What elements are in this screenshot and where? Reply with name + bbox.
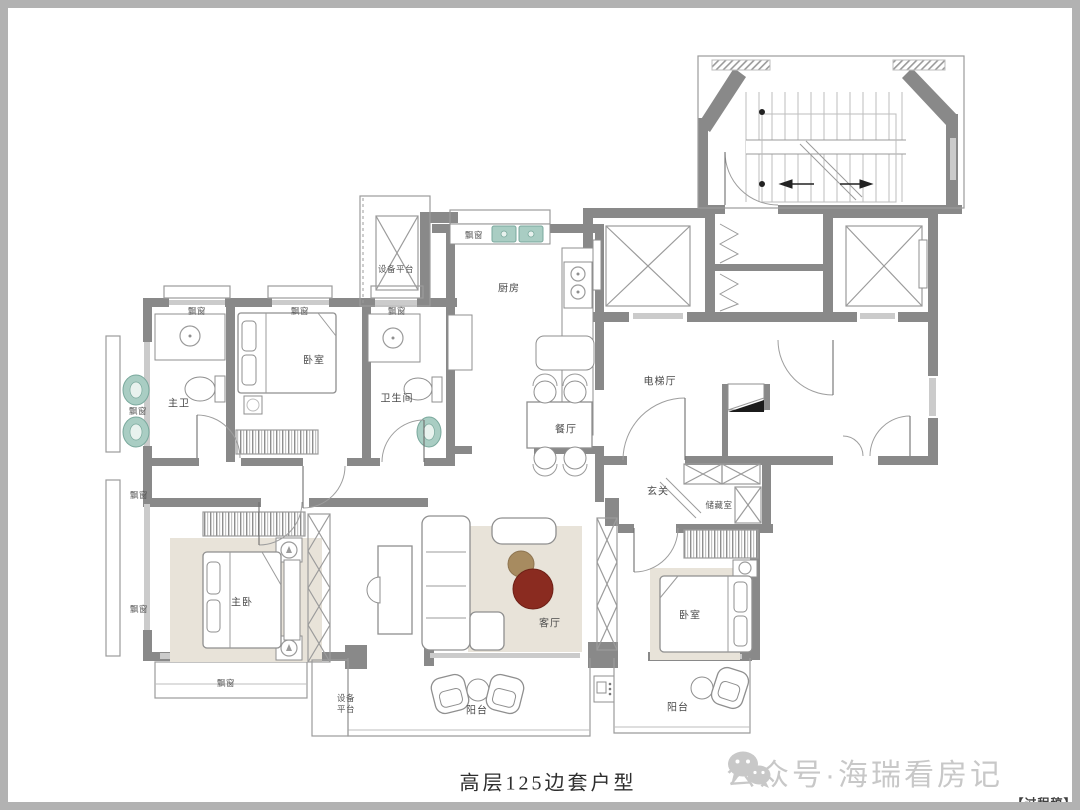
label-master-bedroom: 主卧 (231, 594, 253, 609)
balcony-main-furniture (348, 658, 614, 736)
coffee-table-icon (513, 569, 553, 609)
chair-icon (367, 577, 380, 603)
label-storage: 储藏室 (705, 499, 732, 511)
label-equipment-platform-bottom-line1: 设备 (337, 693, 355, 704)
round-table-icon (467, 679, 489, 701)
foyer-storage-fixtures (660, 464, 761, 523)
label-elevator-hall: 电梯厅 (644, 373, 677, 388)
label-balcony-main: 阳台 (466, 702, 488, 717)
draft-tag: 【过程稿】 (1011, 795, 1076, 810)
label-master-bath: 主卫 (168, 395, 190, 410)
label-bedroom-top: 卧室 (303, 352, 325, 367)
label-foyer: 玄关 (647, 483, 669, 498)
wechat-icon (726, 750, 772, 790)
label-balcony-right: 阳台 (667, 699, 689, 714)
desk-furniture (367, 546, 412, 634)
desk-icon (378, 546, 412, 634)
watermark: 公众号·海瑞看房记 (726, 750, 1003, 794)
balcony-right-furniture (614, 658, 751, 733)
round-table-icon (691, 677, 713, 699)
floorplan-canvas: 设备平台 飘窗 飘窗 飘窗 飘窗 飘窗 飘窗 飘窗 飘窗 厨房 主卫 卧室 卫生… (8, 8, 1072, 802)
bedroom-top-furniture (236, 313, 336, 454)
bedroom-right-furniture (650, 530, 758, 660)
label-living-room: 客厅 (539, 615, 561, 630)
label-bay-window: 飘窗 (388, 305, 406, 317)
elevator-2 (846, 226, 927, 306)
label-bay-window: 飘窗 (130, 489, 148, 501)
elevator-1 (593, 226, 690, 306)
label-equipment-platform-bottom: 设备 平台 (337, 693, 355, 715)
bathroom-fixtures (368, 314, 442, 447)
label-bathroom: 卫生间 (381, 390, 414, 405)
label-bay-window: 飘窗 (129, 405, 147, 417)
label-bay-window: 飘窗 (217, 677, 235, 689)
label-bedroom-right: 卧室 (679, 607, 701, 622)
label-bay-window: 飘窗 (291, 305, 309, 317)
wardrobe-icon (684, 530, 758, 558)
sideboard (536, 336, 594, 370)
master-bath-fixtures (123, 314, 225, 447)
label-bay-window: 飘窗 (130, 603, 148, 615)
label-kitchen: 厨房 (498, 280, 520, 295)
label-bay-window: 飘窗 (465, 229, 483, 241)
label-equipment-platform-bottom-line2: 平台 (337, 704, 355, 715)
hall-pipe-shaft (728, 384, 764, 412)
master-bedroom-furniture (170, 512, 330, 662)
label-bay-window: 飘窗 (188, 305, 206, 317)
plan-caption: 高层125边套户型 (460, 767, 637, 796)
dresser-icon (236, 430, 318, 454)
floorplan-page: 设备平台 飘窗 飘窗 飘窗 飘窗 飘窗 飘窗 飘窗 飘窗 厨房 主卫 卧室 卫生… (0, 0, 1080, 810)
label-dining: 餐厅 (555, 421, 577, 436)
sofa-icon (422, 516, 470, 650)
label-equipment-platform-top: 设备平台 (378, 263, 414, 275)
living-furniture (422, 516, 617, 652)
